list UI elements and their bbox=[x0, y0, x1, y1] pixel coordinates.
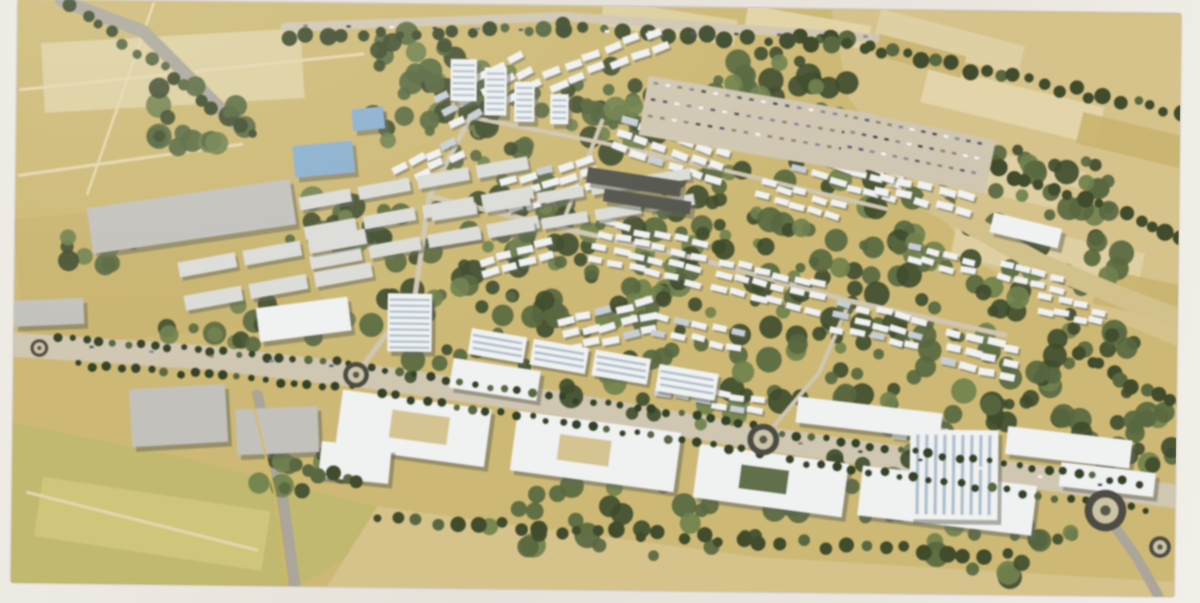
photo-paper-background: Photograph of a printed aerial architect… bbox=[0, 0, 1200, 603]
aerial-rendering-photo bbox=[10, 0, 1181, 597]
masterplan-aerial-artwork bbox=[10, 0, 1181, 597]
